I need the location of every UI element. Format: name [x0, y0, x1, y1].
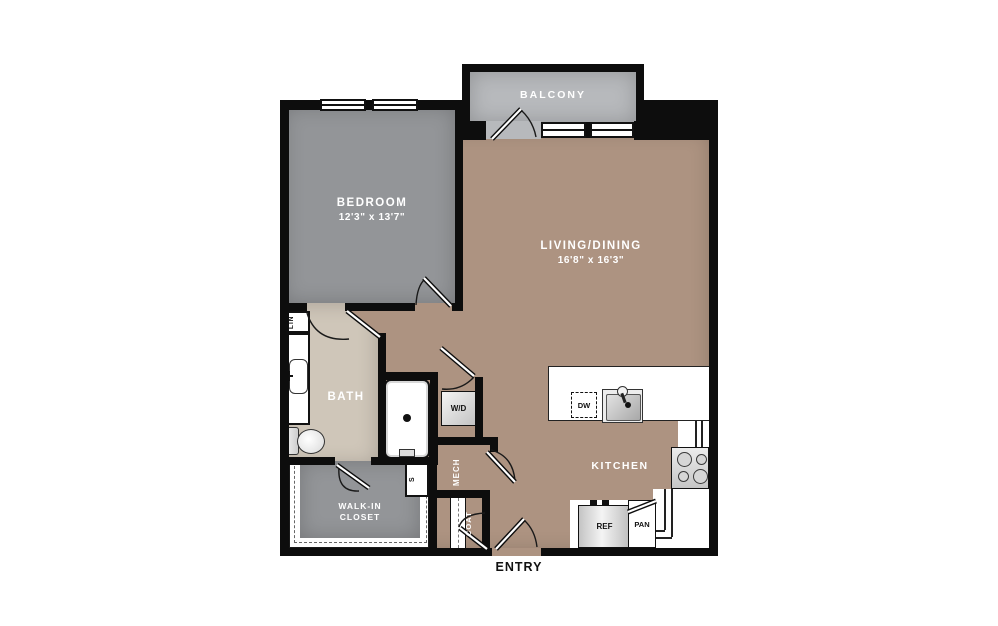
counter-edge-line — [655, 530, 665, 532]
wall — [345, 303, 415, 311]
window — [320, 99, 366, 111]
wall — [280, 303, 307, 311]
wall — [634, 121, 648, 140]
wall — [462, 121, 486, 140]
entry-threshold — [492, 548, 541, 556]
wall — [490, 437, 498, 452]
bath-label: BATH — [300, 390, 392, 405]
dishwasher-label: DW — [578, 401, 591, 410]
balcony-doorway-floor — [486, 121, 541, 139]
kitchen-faucet-dot — [625, 402, 631, 408]
washer-dryer-label: W/D — [451, 404, 467, 413]
kitchen-label: KITCHEN — [560, 460, 680, 474]
coat-rod-line — [458, 498, 459, 548]
wall — [429, 437, 437, 548]
floor-walkin-closet — [300, 461, 420, 538]
wall — [280, 457, 335, 465]
kitchen-counter-right-lower — [653, 489, 709, 548]
pantry-label: PAN — [634, 520, 649, 529]
counter-edge-line — [701, 421, 703, 447]
bedroom-dimensions: 12'3" x 13'7" — [289, 211, 455, 224]
wall — [429, 437, 498, 445]
counter-edge-line — [695, 421, 697, 447]
kitchen-sink — [602, 389, 643, 423]
wall — [371, 457, 437, 465]
wall — [482, 498, 490, 548]
balcony-label: BALCONY — [468, 89, 638, 103]
coat-label: COAT — [464, 500, 480, 548]
wall — [378, 372, 438, 380]
mech-label: MECH — [452, 445, 470, 500]
linen-label: LIN — [288, 313, 306, 331]
walkin-line1: WALK-IN — [300, 501, 420, 512]
window — [372, 99, 418, 111]
counter-edge-line — [655, 537, 672, 539]
window — [541, 122, 586, 138]
wall — [475, 377, 483, 445]
living-dining-label: LIVING/DINING 16'8" x 16'3" — [471, 239, 711, 267]
toilet-bowl — [297, 429, 325, 454]
living-dining-dimensions: 16'8" x 16'3" — [471, 254, 711, 267]
shelf-label: S — [409, 468, 425, 490]
wall — [636, 100, 718, 140]
wall — [452, 303, 463, 311]
entry-label: ENTRY — [479, 559, 559, 575]
washer-dryer: W/D — [441, 391, 476, 426]
living-dining-name: LIVING/DINING — [471, 239, 711, 254]
pantry: PAN — [628, 500, 656, 548]
refrigerator: REF — [578, 505, 631, 548]
counter-edge-line — [671, 489, 673, 537]
wall — [462, 64, 644, 72]
wall — [455, 107, 463, 311]
tub-faucet-icon — [399, 449, 415, 457]
walkin-line2: CLOSET — [300, 512, 420, 523]
bedroom-name: BEDROOM — [289, 196, 455, 211]
dishwasher: DW — [571, 392, 597, 418]
refrigerator-label: REF — [597, 522, 613, 531]
stove-burner — [696, 454, 707, 465]
bedroom-label: BEDROOM 12'3" x 13'7" — [289, 196, 455, 224]
wall — [709, 100, 718, 556]
walkin-closet-label: WALK-IN CLOSET — [300, 501, 420, 523]
floorplan-canvas: DW REF PAN W/D — [0, 0, 998, 626]
tub-drain — [403, 414, 411, 422]
wall — [280, 100, 462, 110]
stove-burner — [693, 469, 708, 484]
window — [590, 122, 634, 138]
counter-edge-line — [664, 489, 666, 530]
